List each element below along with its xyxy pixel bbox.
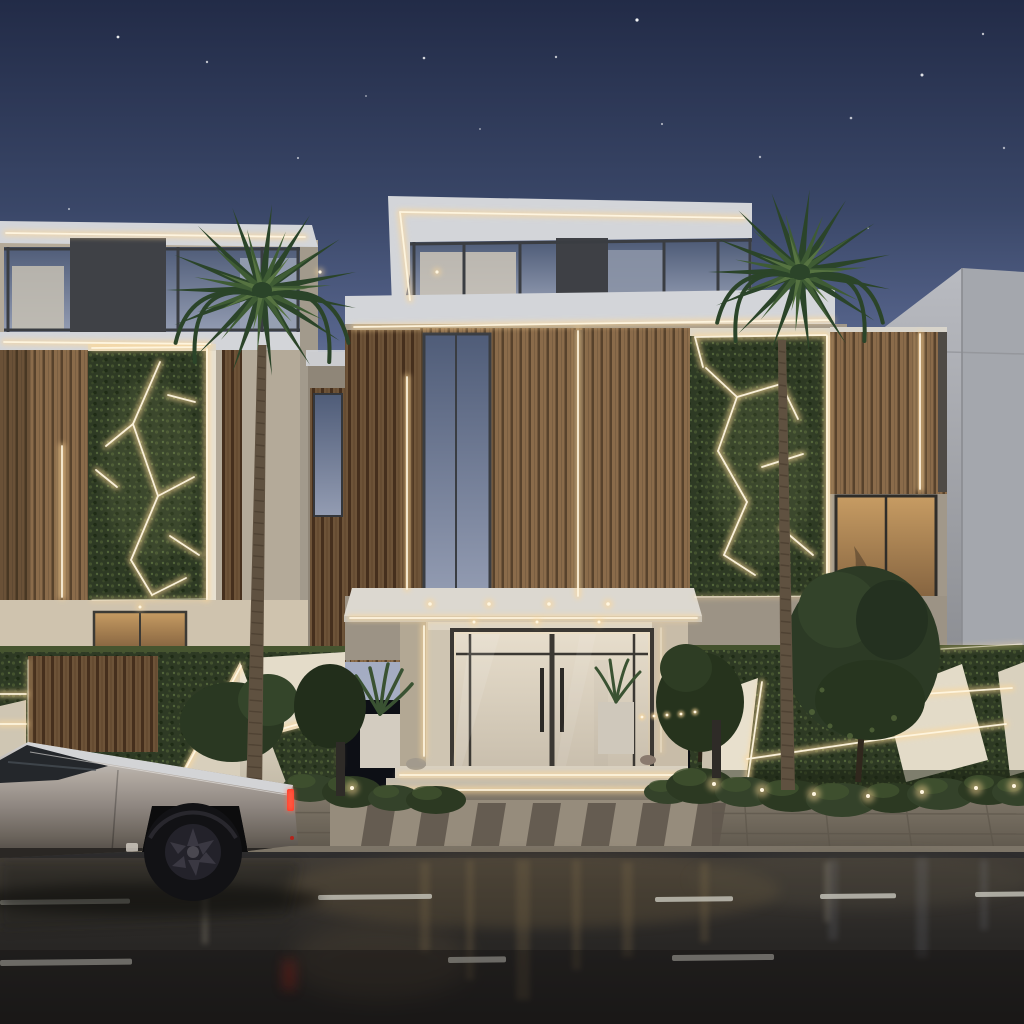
architectural-render: Photorealistic dusk rendering of a moder… <box>0 0 1024 1024</box>
scene-canvas <box>0 0 1024 1024</box>
